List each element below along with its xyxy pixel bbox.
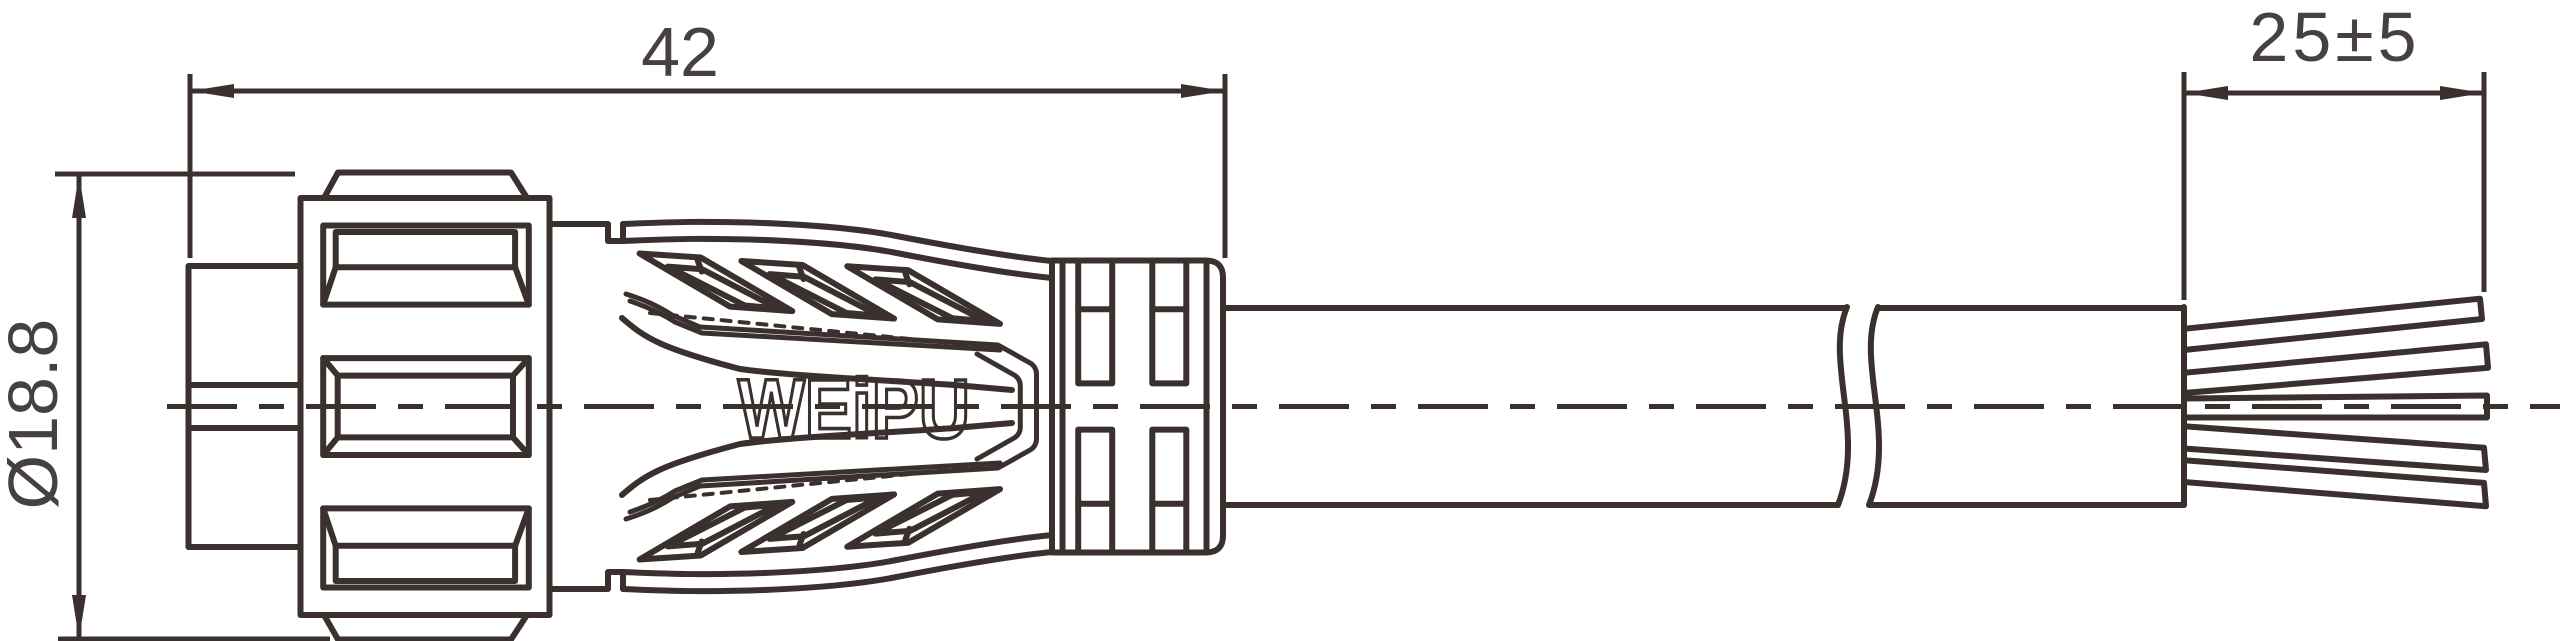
- svg-text:42: 42: [641, 13, 719, 91]
- svg-text:25±5: 25±5: [2249, 0, 2420, 76]
- svg-text:Ø18.8: Ø18.8: [0, 319, 72, 510]
